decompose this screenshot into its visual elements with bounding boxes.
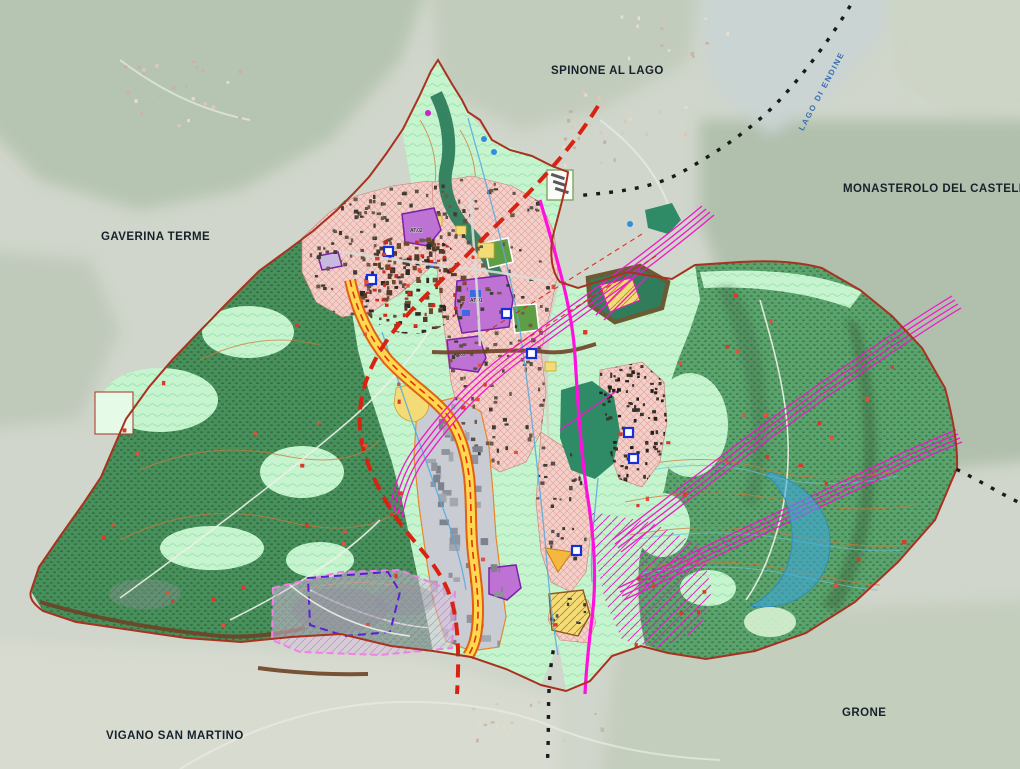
map-label-vigano-san-martino: VIGANO SAN MARTINO [106,730,244,742]
clearing-parcel [95,392,133,434]
zoning-map-canvas: AT.01 AT.02 AT.03 [0,0,1020,769]
study-area-zone [272,570,455,655]
map-label-grone: GRONE [842,707,886,719]
map-label-spinone-al-lago: SPINONE AL LAGO [551,65,664,77]
zone-label-at02: AT.02 [410,228,423,234]
map-label-gaverina-terme: GAVERINA TERME [101,231,210,243]
map-label-monasterolo-del-castello: MONASTEROLO DEL CASTELLO [843,183,1020,195]
gray-hatched-area [109,579,181,609]
map-viewport[interactable]: AT.01 AT.02 AT.03 [0,0,1020,769]
facility-white-parcel [547,170,573,200]
clearing-below-hazard [744,607,796,637]
